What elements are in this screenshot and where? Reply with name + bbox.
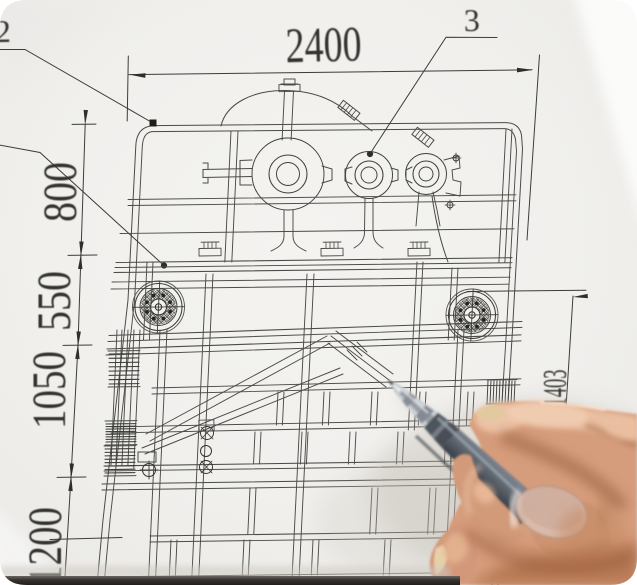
svg-text:1050: 1050 — [23, 351, 76, 429]
svg-text:2400: 2400 — [285, 15, 363, 73]
svg-text:800: 800 — [34, 162, 87, 222]
svg-text:2: 2 — [0, 13, 11, 49]
svg-text:3: 3 — [463, 2, 480, 38]
svg-text:550: 550 — [28, 271, 81, 331]
